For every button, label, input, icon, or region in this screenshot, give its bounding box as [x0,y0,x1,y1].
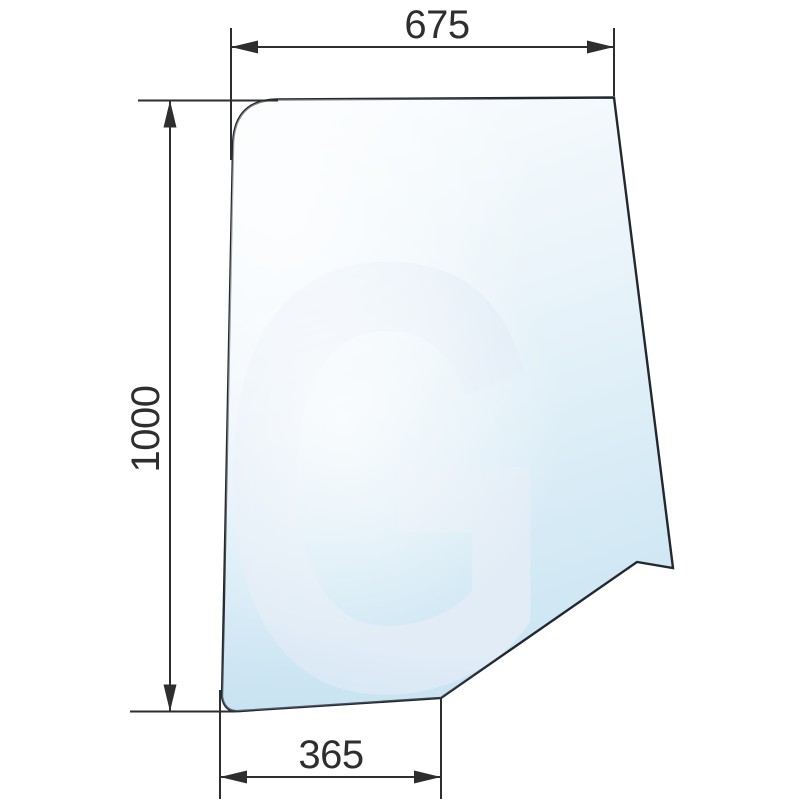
glass-reflection-band [215,90,680,720]
dimension-label-bottom-width: 365 [298,733,363,777]
technical-drawing-canvas: G 675 1000 [0,0,800,800]
dimension-label-left-height: 1000 [124,386,168,473]
dimension-label-top-width: 675 [404,3,469,47]
arrowhead-down-icon [164,685,177,712]
arrowhead-right-icon [587,41,614,54]
glass-drawing: G 675 1000 [0,0,800,800]
arrowhead-right-icon [414,771,441,784]
glass-panel: G [20,0,680,800]
arrowhead-left-icon [231,41,258,54]
arrowhead-up-icon [164,101,177,128]
arrowhead-left-icon [220,771,247,784]
